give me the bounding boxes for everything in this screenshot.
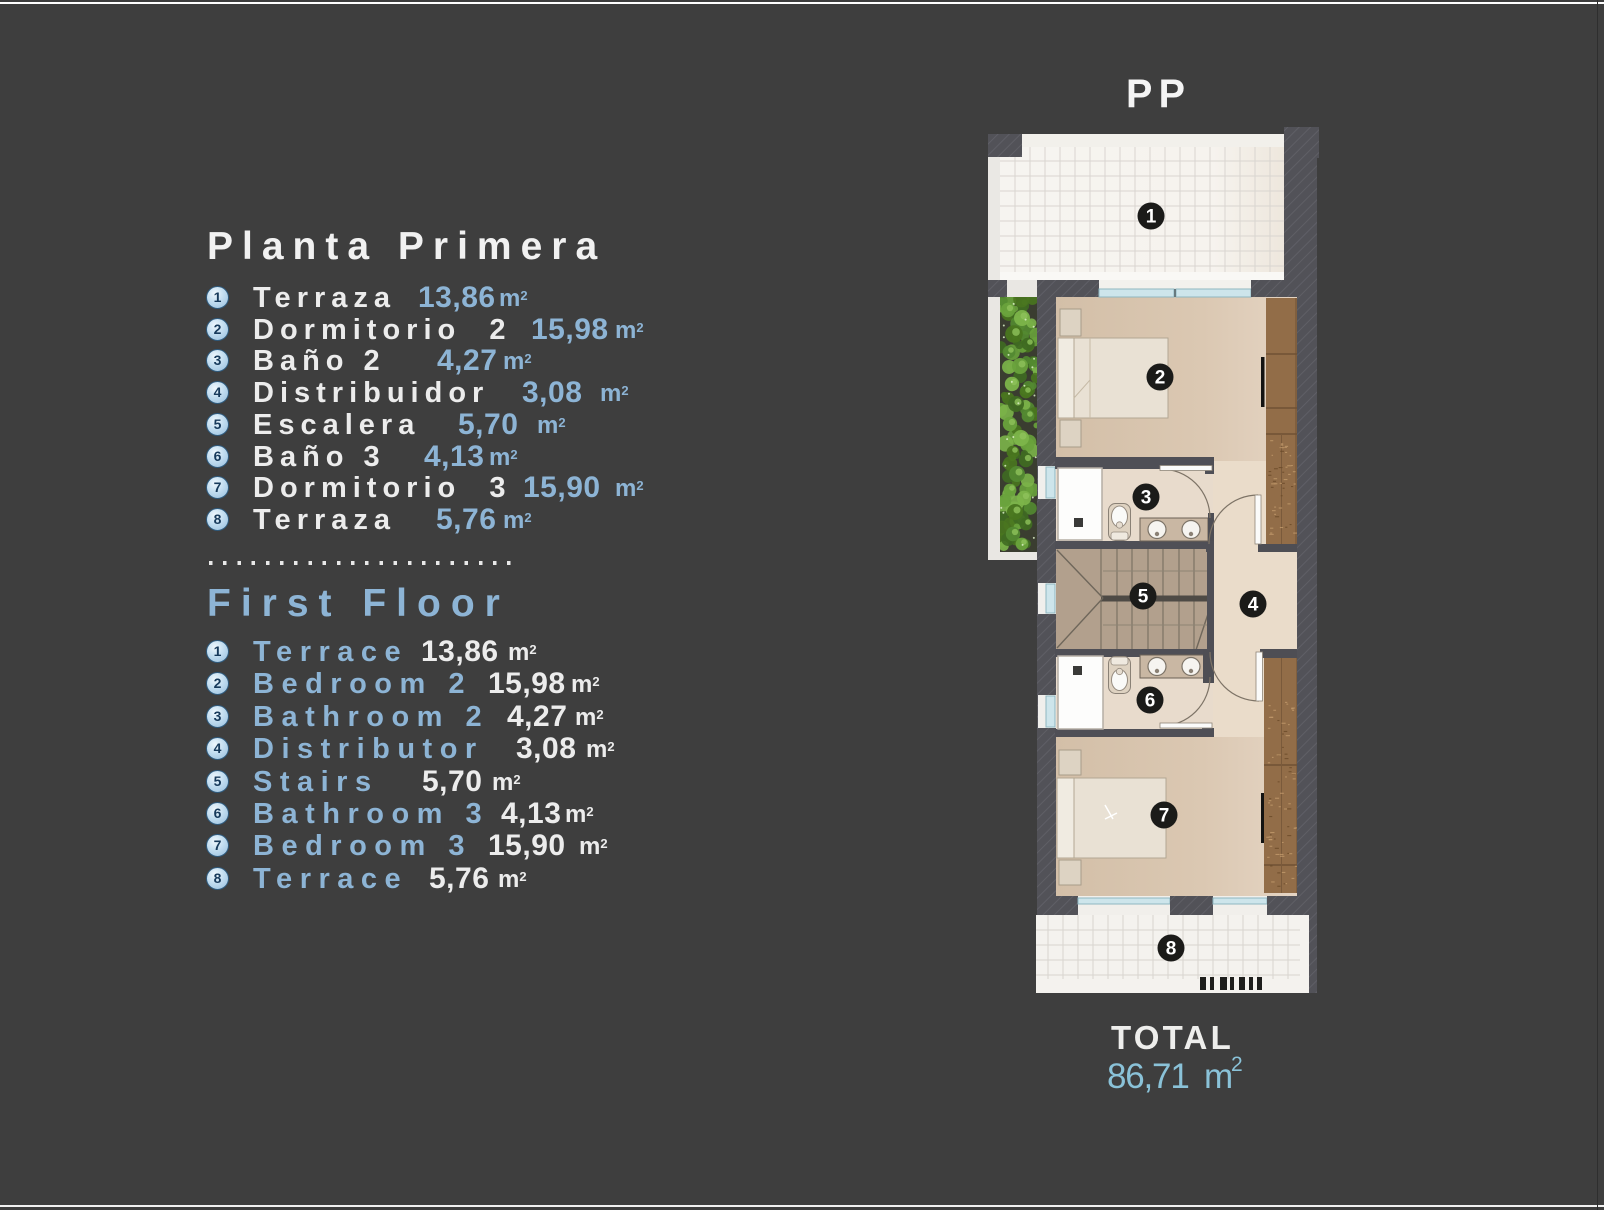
svg-text:2: 2 — [1155, 368, 1166, 389]
svg-text:7: 7 — [1159, 806, 1170, 827]
svg-text:4: 4 — [1248, 595, 1259, 616]
svg-text:3: 3 — [1141, 488, 1152, 509]
svg-text:1: 1 — [1146, 207, 1157, 228]
svg-text:6: 6 — [1145, 691, 1156, 712]
svg-text:5: 5 — [1138, 587, 1149, 608]
svg-text:8: 8 — [1166, 939, 1177, 960]
